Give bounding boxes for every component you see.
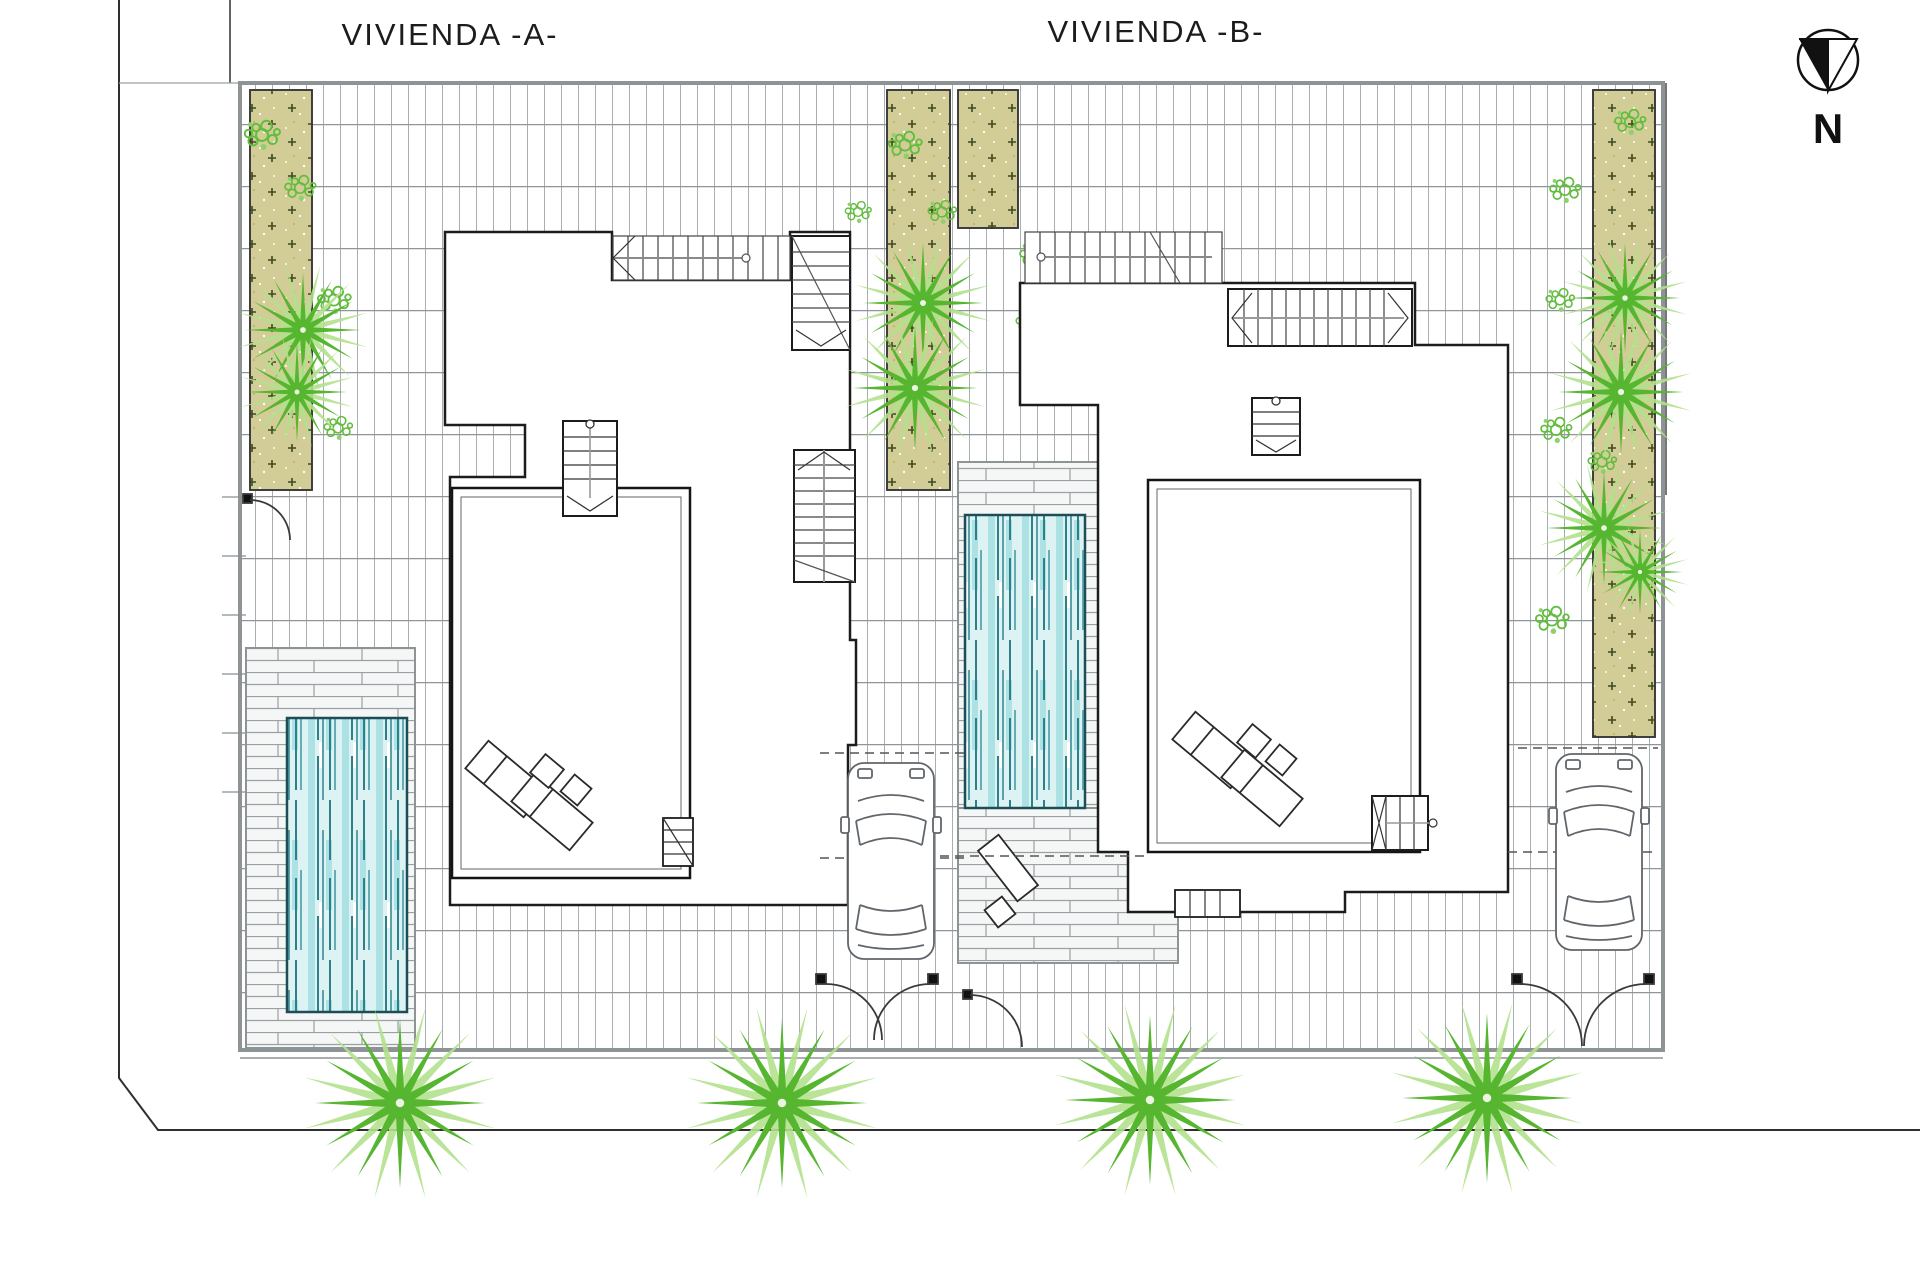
pool-a (287, 718, 407, 1012)
stair-a-right (794, 450, 855, 582)
garden-strip-middle-b (958, 90, 1018, 228)
stair-b-entry (1175, 890, 1240, 917)
stair-a-topright (792, 236, 850, 350)
car-a (841, 763, 941, 959)
stair-b-top (1025, 232, 1222, 283)
north-arrow: N (1798, 30, 1858, 152)
dwelling-a-label: VIVIENDA -A- (342, 17, 559, 52)
stair-a-central (563, 420, 617, 516)
house-a (445, 232, 856, 905)
stair-b-central (1252, 397, 1300, 455)
compass-needle-dark (1799, 39, 1828, 91)
north-label: N (1813, 105, 1843, 152)
dwelling-b-label: VIVIENDA -B- (1048, 14, 1265, 49)
stair-a-small (663, 818, 693, 866)
compass-needle-light (1828, 39, 1857, 91)
site-plan-svg: VIVIENDA -A- VIVIENDA -B- N (0, 0, 1920, 1280)
pool-b (965, 515, 1085, 808)
stair-b-topright (1228, 289, 1412, 346)
stair-b-lowerright (1372, 796, 1437, 850)
site-plan: VIVIENDA -A- VIVIENDA -B- N (0, 0, 1920, 1280)
stair-a-top (613, 236, 790, 280)
car-b (1549, 754, 1649, 950)
